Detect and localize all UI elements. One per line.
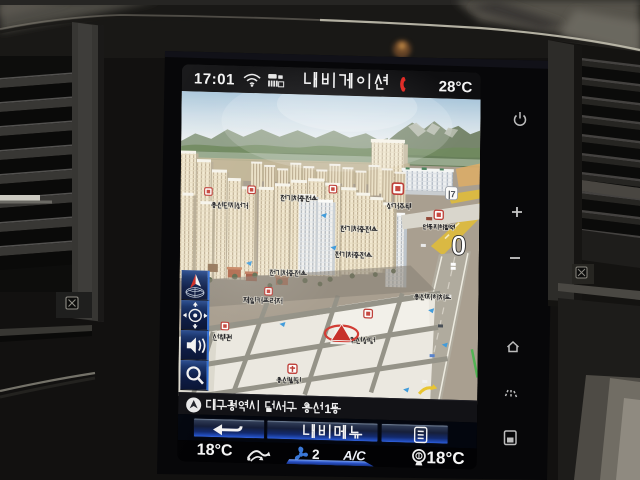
svg-text:1: 1	[324, 402, 331, 416]
